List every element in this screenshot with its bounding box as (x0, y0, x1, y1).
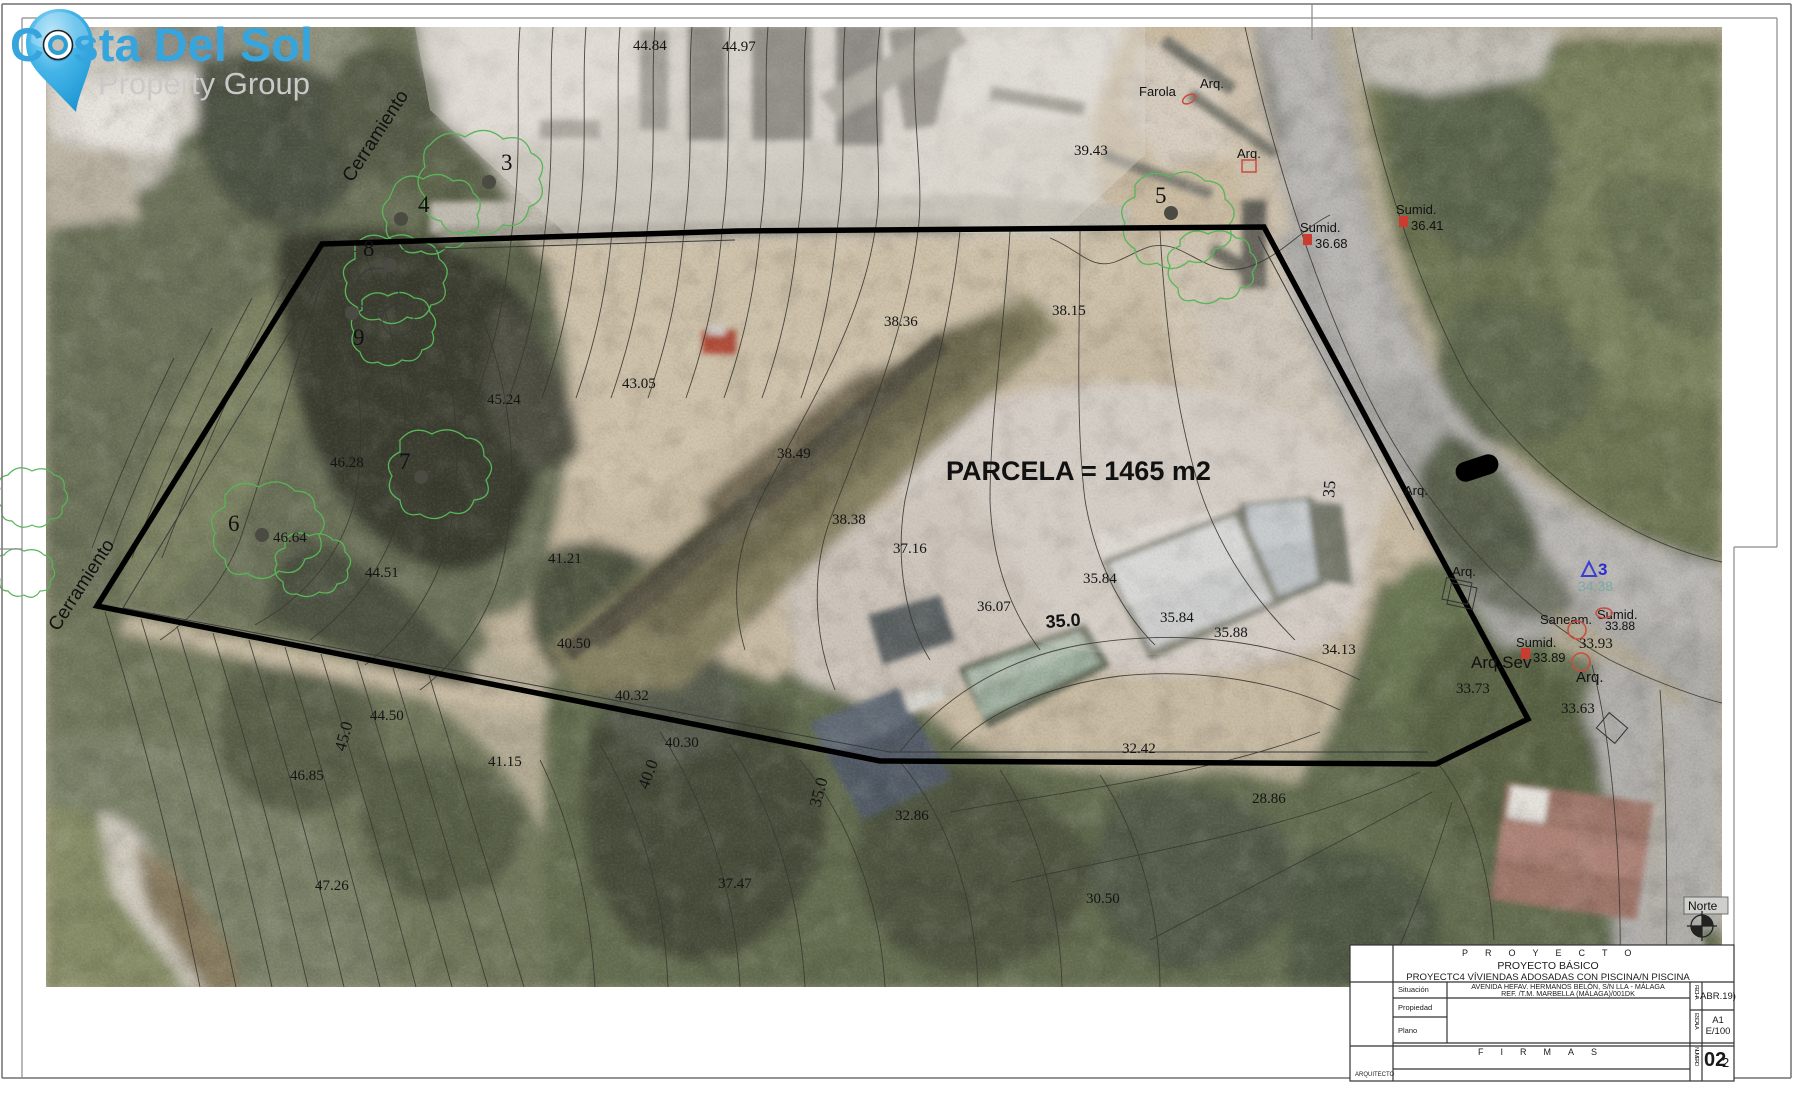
svg-text:36.07: 36.07 (977, 599, 1011, 615)
svg-text:35.84: 35.84 (1083, 571, 1117, 587)
svg-text:E/100: E/100 (1706, 1026, 1731, 1037)
svg-text:Arq.: Arq. (1200, 76, 1224, 91)
svg-text:ARQUITECTO: ARQUITECTO (1355, 1072, 1395, 1078)
svg-text:43.05: 43.05 (622, 376, 656, 392)
svg-text:6: 6 (228, 511, 240, 536)
svg-text:7: 7 (399, 449, 411, 474)
svg-text:40.30: 40.30 (665, 735, 699, 751)
svg-text:45.24: 45.24 (487, 392, 521, 408)
svg-text:Sumid.: Sumid. (1396, 202, 1436, 217)
svg-text:40.32: 40.32 (615, 688, 649, 704)
svg-text:34.38: 34.38 (1578, 578, 1613, 594)
svg-text:38.36: 38.36 (884, 314, 918, 330)
svg-text:33.63: 33.63 (1561, 701, 1595, 717)
svg-text:Arq.: Arq. (1237, 146, 1261, 161)
svg-text:44.50: 44.50 (370, 708, 404, 724)
svg-text:ABR.19): ABR.19) (1700, 991, 1736, 1002)
svg-text:3: 3 (501, 150, 513, 175)
svg-text:PARCELA = 1465 m2: PARCELA = 1465 m2 (946, 456, 1211, 486)
svg-text:32.42: 32.42 (1122, 741, 1156, 757)
svg-text:3: 3 (1598, 560, 1607, 579)
svg-text:41.21: 41.21 (548, 551, 582, 567)
svg-text:REF. /T.M. MARBELLA (MÁLAGA)/0: REF. /T.M. MARBELLA (MÁLAGA)/001DK (1501, 989, 1635, 998)
svg-text:Plano: Plano (1398, 1026, 1417, 1035)
svg-text:PROYECTO BÁSICO: PROYECTO BÁSICO (1497, 959, 1598, 972)
svg-text:35.0: 35.0 (1045, 610, 1081, 632)
svg-text:32.86: 32.86 (895, 808, 929, 824)
svg-text:33.88: 33.88 (1605, 619, 1635, 633)
svg-text:4: 4 (418, 192, 430, 217)
svg-text:FIRMAS: FIRMAS (1478, 1047, 1614, 1057)
svg-text:46.85: 46.85 (290, 768, 324, 784)
svg-text:Arq.: Arq. (1452, 564, 1476, 579)
svg-text:Norte: Norte (1688, 899, 1718, 913)
svg-text:36.68: 36.68 (1315, 236, 1348, 251)
svg-text:PROYECTO: PROYECTO (1462, 948, 1648, 958)
svg-text:44.84: 44.84 (633, 38, 667, 54)
svg-text:46.28: 46.28 (330, 455, 364, 471)
svg-text:A1: A1 (1712, 1015, 1724, 1026)
svg-text:34.13: 34.13 (1322, 642, 1356, 658)
svg-text:8: 8 (363, 236, 375, 261)
svg-text:Sumid.: Sumid. (1300, 220, 1340, 235)
svg-text:FECHA: FECHA (1693, 985, 1699, 1000)
svg-text:39.43: 39.43 (1074, 143, 1108, 159)
svg-text:NUMERO: NUMERO (1693, 1047, 1699, 1067)
svg-text:33.89: 33.89 (1533, 650, 1566, 665)
svg-text:Farola: Farola (1139, 84, 1177, 99)
svg-text:Situación: Situación (1398, 985, 1429, 994)
svg-text:35.84: 35.84 (1160, 610, 1194, 626)
svg-text:46.64: 46.64 (273, 530, 307, 546)
svg-text:44.97: 44.97 (722, 39, 756, 55)
svg-text:38.49: 38.49 (777, 446, 811, 462)
svg-text:38.38: 38.38 (832, 512, 866, 528)
svg-text:5: 5 (1155, 183, 1167, 208)
svg-text:47.26: 47.26 (315, 878, 349, 894)
svg-text:9: 9 (353, 325, 365, 350)
svg-text:44.51: 44.51 (365, 565, 399, 581)
svg-text:35: 35 (1319, 480, 1339, 499)
svg-text:33.73: 33.73 (1456, 681, 1490, 697)
svg-text:37.16: 37.16 (893, 541, 927, 557)
svg-text:30.50: 30.50 (1086, 891, 1120, 907)
svg-text:36.41: 36.41 (1411, 218, 1444, 233)
svg-text:37.47: 37.47 (718, 876, 752, 892)
svg-text:Property Group: Property Group (98, 66, 310, 101)
svg-text:35.88: 35.88 (1214, 625, 1248, 641)
svg-text:Arq.: Arq. (1404, 483, 1428, 498)
svg-text:38.15: 38.15 (1052, 303, 1086, 319)
svg-text:Sumid.: Sumid. (1516, 635, 1556, 650)
svg-text:41.15: 41.15 (488, 754, 522, 770)
svg-text:28.86: 28.86 (1252, 791, 1286, 807)
svg-text:ESCALA: ESCALA (1693, 1013, 1699, 1030)
svg-text:33.93: 33.93 (1579, 636, 1613, 652)
svg-text:Propiedad: Propiedad (1398, 1003, 1432, 1012)
svg-text:2: 2 (1722, 1055, 1729, 1070)
svg-text:40.50: 40.50 (557, 636, 591, 652)
